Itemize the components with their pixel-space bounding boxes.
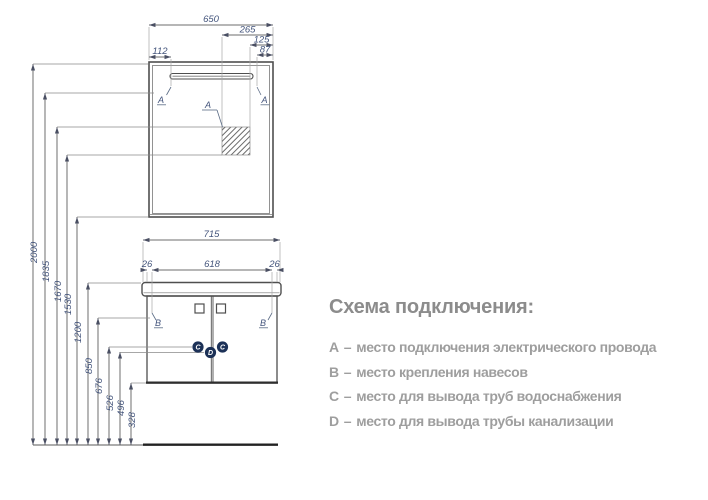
legend-title: Схема подключения: xyxy=(329,296,703,319)
dim-2000: 2000 xyxy=(29,241,40,264)
height-dimension-lines xyxy=(33,64,131,445)
dim-328: 328 xyxy=(127,411,138,428)
dim-850: 850 xyxy=(84,357,95,374)
legend-text-a: место подключения электрического провода xyxy=(356,339,656,355)
legend-item-d: D–место для вывода трубы канализации xyxy=(329,413,703,429)
mirror-marks: A A A xyxy=(157,87,270,127)
legend-text-d: место для вывода трубы канализации xyxy=(356,413,613,429)
dim-715: 715 xyxy=(204,229,221,240)
legend-separator: – xyxy=(344,339,351,355)
dim-26-right: 26 xyxy=(268,259,280,270)
legend-separator: – xyxy=(344,364,351,380)
dim-676: 676 xyxy=(94,377,105,394)
mark-vanity-left: B xyxy=(155,318,161,328)
dim-112: 112 xyxy=(152,46,168,57)
legend-text-c: место для вывода труб водоснабжения xyxy=(356,388,621,404)
connection-scheme-page: 650 265 125 87 112 715 26 618 26 xyxy=(0,0,708,500)
mark-outlet-zone: A xyxy=(204,100,211,110)
lamp-icon xyxy=(170,74,253,80)
door-handle-left xyxy=(195,304,204,313)
vanity-unit xyxy=(142,283,281,384)
legend-letter-b: B xyxy=(329,364,339,380)
legend-letter-d: D xyxy=(329,413,339,429)
vanity-marks: B B xyxy=(152,313,272,328)
dim-87: 87 xyxy=(260,45,271,56)
legend-letter-a: A xyxy=(329,339,339,355)
legend-item-c: C–место для вывода труб водоснабжения xyxy=(329,388,703,404)
legend-letter-c: C xyxy=(329,388,339,404)
dim-1530: 1530 xyxy=(63,293,74,315)
technical-drawing: 650 265 125 87 112 715 26 618 26 xyxy=(0,0,340,500)
legend-separator: – xyxy=(344,388,351,404)
dim-496: 496 xyxy=(116,399,127,416)
legend-item-a: A–место подключения электрического прово… xyxy=(329,339,703,355)
height-dimension-jogs xyxy=(33,64,222,383)
dim-1200: 1200 xyxy=(73,321,84,343)
plumbing-markers: C D C xyxy=(192,341,228,358)
door-handle-right xyxy=(217,304,226,313)
mark-mirror-right: A xyxy=(261,95,268,105)
mark-drain: D xyxy=(208,350,213,357)
legend-item-b: B–место крепления навесов xyxy=(329,364,703,380)
electric-outlet-zone xyxy=(222,127,250,155)
mirror-cabinet xyxy=(149,62,273,217)
mark-mirror-left: A xyxy=(157,95,164,105)
dim-26-left: 26 xyxy=(141,259,153,270)
dim-1835: 1835 xyxy=(41,260,52,282)
legend: Схема подключения: A–место подключения э… xyxy=(329,296,703,437)
horizontal-dimension-labels: 650 265 125 87 112 715 26 618 26 xyxy=(141,14,281,270)
mark-vanity-right: B xyxy=(260,318,266,328)
dim-618: 618 xyxy=(204,259,221,270)
legend-separator: – xyxy=(344,413,351,429)
legend-text-b: место крепления навесов xyxy=(356,364,527,380)
dim-650: 650 xyxy=(203,14,220,25)
dim-526: 526 xyxy=(105,394,116,411)
